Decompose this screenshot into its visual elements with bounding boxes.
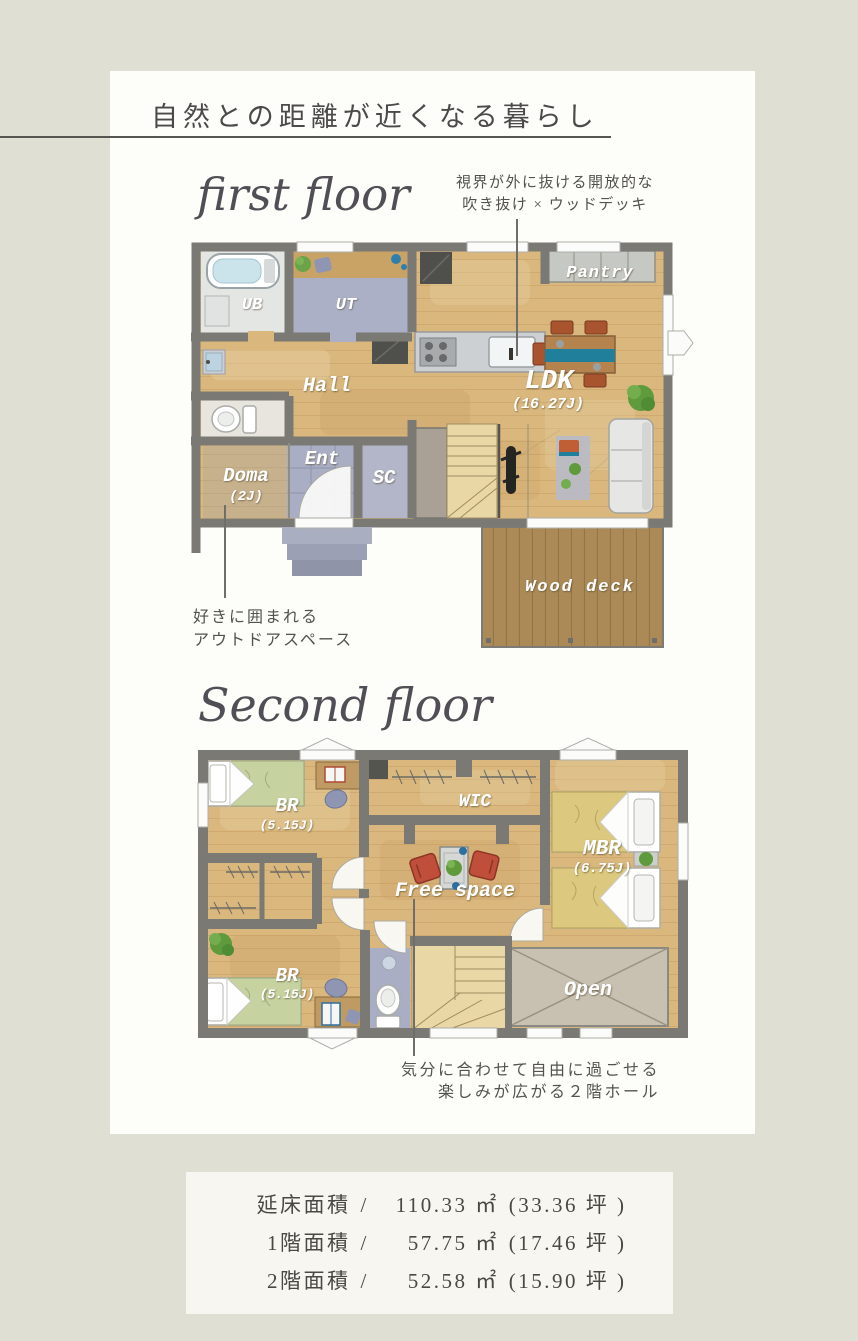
rug-icon [556, 436, 590, 500]
fridge-icon [420, 252, 452, 284]
room-label-hall: Hall [303, 375, 351, 398]
room-label-ent: Ent [305, 448, 339, 470]
room-label-br2-size: (5.15J) [260, 987, 315, 1002]
stats-separator: / [350, 1186, 376, 1224]
stairs-icon-2f [412, 945, 507, 1030]
room-label-mbr: MBR [582, 838, 621, 861]
stats-row-floor1: 1階面積/57.75 ㎡(17.46 坪 ) [232, 1224, 626, 1262]
stats-tsubo-value: (15.90 坪 ) [499, 1262, 627, 1300]
room-label-br1-size: (5.15J) [260, 818, 315, 833]
stats-area-value: 57.75 ㎡ [377, 1224, 499, 1262]
gable-mark-icon [308, 1037, 357, 1049]
toilet-icon [212, 406, 256, 433]
room-label-sc: SC [373, 467, 396, 489]
stats-tsubo-value: (17.46 坪 ) [499, 1224, 627, 1262]
page-title: 自然との距離が近くなる暮らし [151, 95, 599, 134]
floor1-bottom-callout: 好きに囲まれる アウトドアスペース [193, 606, 353, 652]
stats-tsubo-value: (33.36 坪 ) [499, 1186, 627, 1224]
stats-row-total: 延床面積/110.33 ㎡(33.36 坪 ) [232, 1186, 626, 1224]
room-label-br1: BR [276, 795, 299, 817]
room-label-ub: UB [242, 296, 262, 315]
floor1-top-callout-line1: 視界が外に抜ける開放的な [425, 172, 685, 194]
floor1-bottom-callout-line1: 好きに囲まれる [193, 606, 353, 629]
room-label-ut: UT [336, 296, 357, 315]
room-label-wic: WIC [459, 792, 492, 812]
stats-label: 延床面積 [232, 1186, 350, 1224]
room-label-doma-size: (2J) [229, 489, 263, 505]
stats-area-value: 52.58 ㎡ [377, 1262, 499, 1300]
floor1-bottom-callout-line2: アウトドアスペース [193, 629, 353, 652]
area-stats-box: 延床面積/110.33 ㎡(33.36 坪 ) 1階面積/57.75 ㎡(17.… [186, 1172, 673, 1314]
stats-label: 1階面積 [232, 1224, 350, 1262]
washbasin-icon [203, 350, 225, 374]
room-label-ldk-size: (16.27J) [512, 396, 584, 413]
floor2-bottom-callout: 気分に合わせて自由に過ごせる 楽しみが広がる２階ホール [401, 1060, 660, 1104]
room-label-br2: BR [276, 965, 299, 987]
room-label-wood-deck: Wood deck [525, 578, 635, 597]
stats-separator: / [350, 1224, 376, 1262]
gable-mark-icon [300, 738, 355, 751]
floor2-bottom-callout-line1: 気分に合わせて自由に過ごせる [401, 1060, 660, 1082]
sofa-icon [609, 419, 653, 513]
room-label-ldk: LDK [525, 367, 576, 397]
gable-mark-icon [560, 738, 616, 751]
room-label-doma: Doma [223, 465, 269, 487]
stats-separator: / [350, 1262, 376, 1300]
room-toilet2-floor [366, 948, 410, 1030]
kitchen-counter-icon [415, 332, 545, 372]
bay-arrow-icon [668, 331, 693, 355]
second-floor-heading: Second floor [198, 678, 492, 732]
porch-steps-icon [282, 527, 372, 576]
stats-row-floor2: 2階面積/52.58 ㎡(15.90 坪 ) [232, 1262, 626, 1300]
title-underline [0, 136, 611, 138]
room-label-mbr-size: (6.75J) [573, 861, 632, 877]
room-label-open: Open [564, 979, 612, 1002]
stats-area-value: 110.33 ㎡ [377, 1186, 499, 1224]
stats-label: 2階面積 [232, 1262, 350, 1300]
first-floor-plan: UB UT Hall Ent SC Doma (2J) LDK (16.27J)… [186, 210, 702, 655]
second-floor-plan: BR (5.15J) WIC MBR (6.75J) Free space BR… [195, 735, 695, 1060]
room-label-pantry: Pantry [566, 264, 633, 283]
room-label-free-space: Free space [395, 880, 515, 903]
floor2-bottom-callout-line2: 楽しみが広がる２階ホール [401, 1082, 660, 1104]
flyer-page: 自然との距離が近くなる暮らし first floor 視界が外に抜ける開放的な … [0, 0, 858, 1341]
